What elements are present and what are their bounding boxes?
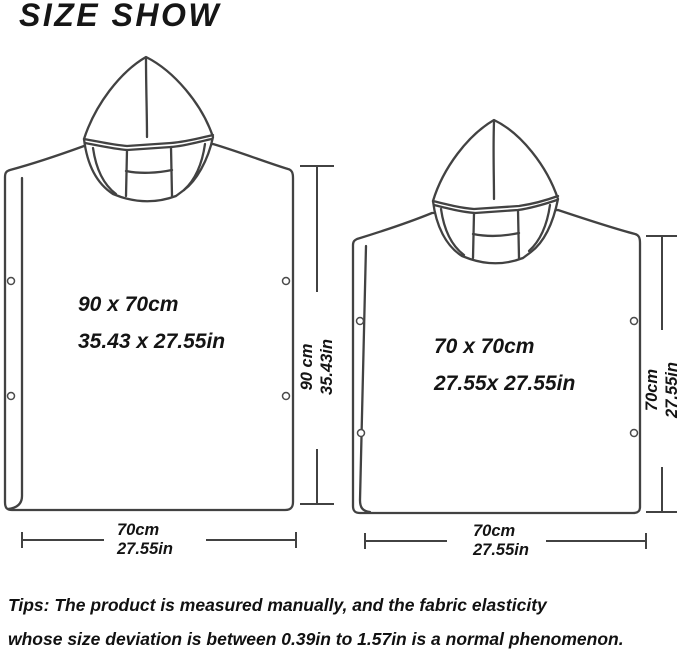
large-hood-center-seam <box>146 59 147 137</box>
small-width-label: 70cm 27.55in <box>473 522 529 560</box>
small-poncho-size-label: 70 x 70cm 27.55x 27.55in <box>434 328 575 402</box>
large-poncho-drawing <box>5 57 293 510</box>
small-snap-button <box>357 318 364 325</box>
tips-line-2: whose size deviation is between 0.39in t… <box>8 623 624 651</box>
tips-note: Tips: The product is measured manually, … <box>8 589 624 651</box>
large-width-cm: 70cm <box>117 521 173 540</box>
large-hood-opening-right <box>171 147 172 196</box>
small-snap-button <box>631 430 638 437</box>
small-height-in: 27.55in <box>662 362 679 418</box>
small-snap-button <box>631 318 638 325</box>
large-hood-opening-left <box>126 150 127 196</box>
large-snap-button <box>8 393 15 400</box>
small-height-label: 70cm 27.55in <box>642 362 679 418</box>
large-height-label: 90 cm 35.43in <box>297 339 337 395</box>
tips-line-1: Tips: The product is measured manually, … <box>8 589 624 623</box>
small-width-cm: 70cm <box>473 522 529 541</box>
small-size-cm: 70 x 70cm <box>434 328 575 365</box>
large-snap-button <box>283 278 290 285</box>
large-height-dimension-line <box>300 166 334 504</box>
large-height-cm: 90 cm <box>297 339 317 395</box>
large-size-in: 35.43 x 27.55in <box>78 323 225 360</box>
small-width-in: 27.55in <box>473 541 529 560</box>
large-size-cm: 90 x 70cm <box>78 286 225 323</box>
large-width-label: 70cm 27.55in <box>117 521 173 559</box>
small-height-cm: 70cm <box>642 362 662 418</box>
large-height-in: 35.43in <box>317 339 337 395</box>
small-hood-opening-left <box>473 213 474 258</box>
large-poncho-size-label: 90 x 70cm 35.43 x 27.55in <box>78 286 225 360</box>
size-chart-page: SIZE SHOW <box>0 0 679 651</box>
small-poncho-drawing <box>353 120 640 513</box>
large-snap-button <box>8 278 15 285</box>
large-width-in: 27.55in <box>117 540 173 559</box>
small-size-in: 27.55x 27.55in <box>434 365 575 402</box>
small-snap-button <box>358 430 365 437</box>
large-snap-button <box>283 393 290 400</box>
